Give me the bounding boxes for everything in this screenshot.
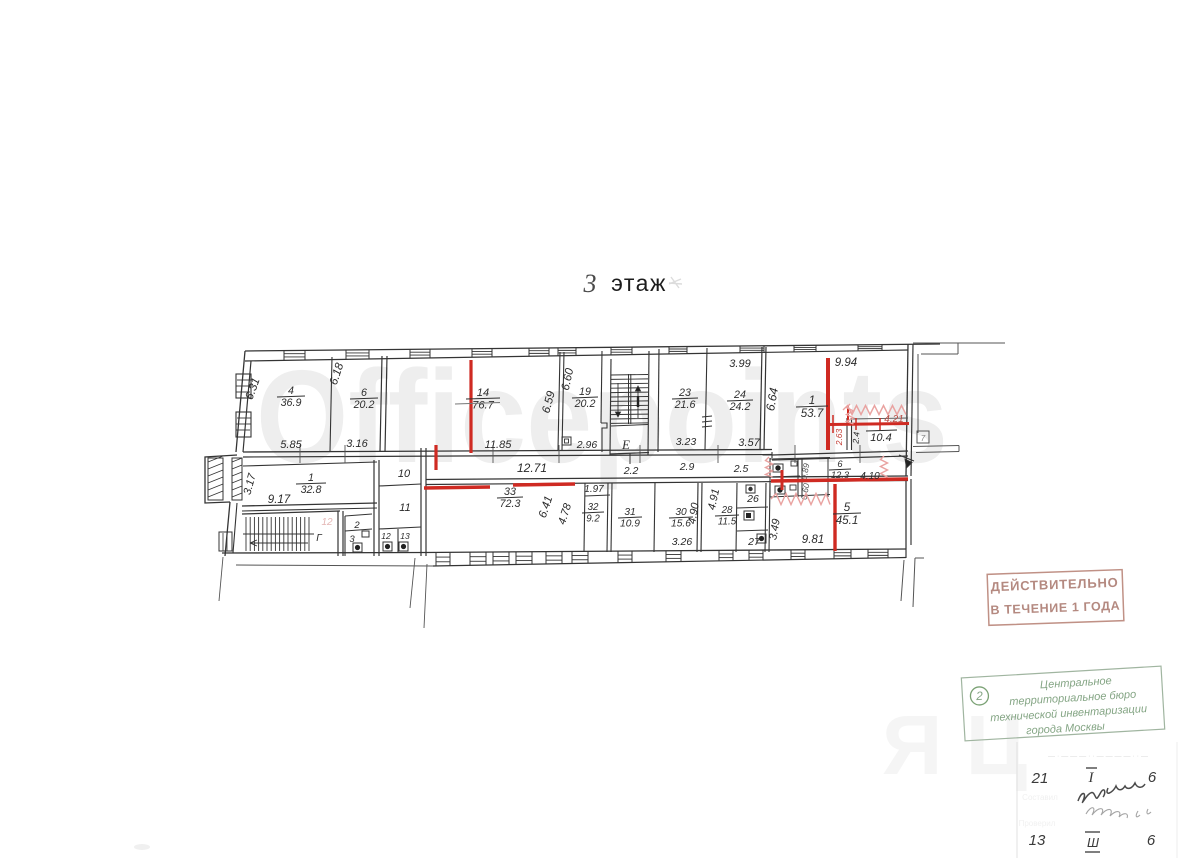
svg-text:5.85: 5.85 <box>280 439 302 451</box>
svg-text:города Москвы: города Москвы <box>1026 721 1105 738</box>
svg-text:9.17: 9.17 <box>268 494 291 506</box>
svg-text:2: 2 <box>975 689 984 703</box>
svg-text:10: 10 <box>398 468 411 480</box>
svg-text:3: 3 <box>349 534 355 545</box>
svg-text:Составил: Составил <box>1022 793 1058 802</box>
svg-text:11: 11 <box>399 502 410 514</box>
svg-text:6: 6 <box>837 459 843 469</box>
svg-text:11.5: 11.5 <box>718 516 737 527</box>
svg-text:2.63: 2.63 <box>834 428 844 446</box>
svg-text:14: 14 <box>477 387 489 399</box>
svg-text:13: 13 <box>400 531 410 541</box>
svg-text:3.99: 3.99 <box>729 358 750 370</box>
svg-text:32: 32 <box>588 502 599 513</box>
svg-text:11.85: 11.85 <box>485 439 513 451</box>
svg-text:9.94: 9.94 <box>835 357 857 369</box>
svg-text:20.2: 20.2 <box>353 399 375 411</box>
svg-text:3.26: 3.26 <box>672 536 693 548</box>
svg-text:19: 19 <box>579 386 591 398</box>
svg-text:33: 33 <box>504 486 516 498</box>
svg-text:Е: Е <box>621 437 630 452</box>
svg-text:28: 28 <box>721 505 733 516</box>
svg-text:21.6: 21.6 <box>674 399 696 411</box>
svg-text:Проверил: Проверил <box>1019 819 1056 828</box>
svg-text:12: 12 <box>381 531 391 541</box>
svg-text:— · — — — · · — — — — · · —: — · — — — · · — — — — · · — <box>1048 753 1148 760</box>
svg-text:26: 26 <box>746 493 759 505</box>
svg-text:1: 1 <box>809 394 815 407</box>
svg-text:13: 13 <box>1029 832 1046 849</box>
svg-text:0.60: 0.60 <box>799 482 812 500</box>
svg-text:3: 3 <box>583 269 597 298</box>
svg-text:4.90: 4.90 <box>686 501 702 525</box>
svg-text:6.41: 6.41 <box>537 495 555 520</box>
svg-text:6: 6 <box>361 387 367 399</box>
svg-text:В ТЕЧЕНИЕ 1 ГОДА: В ТЕЧЕНИЕ 1 ГОДА <box>990 599 1120 618</box>
svg-text:12.3: 12.3 <box>831 470 850 480</box>
svg-text:3.49: 3.49 <box>767 518 783 541</box>
svg-text:12.71: 12.71 <box>517 461 547 475</box>
svg-text:24.2: 24.2 <box>729 401 751 413</box>
svg-text:9.81: 9.81 <box>802 534 824 546</box>
svg-text:12: 12 <box>321 517 333 528</box>
svg-text:7: 7 <box>921 434 926 443</box>
svg-text:Ш: Ш <box>1087 835 1099 850</box>
svg-text:2.4: 2.4 <box>850 431 861 445</box>
svg-text:31: 31 <box>624 507 635 518</box>
svg-text:10.4: 10.4 <box>870 432 891 444</box>
svg-text:2.5: 2.5 <box>733 463 749 475</box>
svg-text:30: 30 <box>675 507 687 518</box>
svg-text:Г: Г <box>316 533 323 544</box>
svg-text:ДЕЙСТВИТЕЛЬНО: ДЕЙСТВИТЕЛЬНО <box>990 575 1118 594</box>
svg-text:53.7: 53.7 <box>801 407 824 420</box>
svg-text:24: 24 <box>733 389 746 401</box>
svg-text:6: 6 <box>1147 832 1156 849</box>
svg-text:2.2: 2.2 <box>623 465 639 477</box>
svg-text:3.17: 3.17 <box>242 471 259 496</box>
svg-text:Центральное: Центральное <box>1040 675 1112 691</box>
svg-text:4.78: 4.78 <box>556 501 574 526</box>
svg-text:4.21: 4.21 <box>884 414 903 425</box>
svg-text:3.16: 3.16 <box>346 438 368 450</box>
svg-text:2.96: 2.96 <box>576 439 598 451</box>
svg-text:5: 5 <box>844 501 851 514</box>
svg-text:9.2: 9.2 <box>586 513 600 524</box>
svg-text:36.9: 36.9 <box>281 397 302 409</box>
svg-text:4.10: 4.10 <box>860 471 880 482</box>
svg-text:2.9: 2.9 <box>679 461 695 473</box>
svg-text:3.57: 3.57 <box>738 437 760 449</box>
svg-text:32.8: 32.8 <box>301 484 322 496</box>
svg-text:1.97: 1.97 <box>584 484 604 495</box>
svg-text:45.1: 45.1 <box>836 514 859 527</box>
svg-text:23: 23 <box>678 387 691 399</box>
svg-text:4.91: 4.91 <box>706 488 722 511</box>
svg-text:3.23: 3.23 <box>676 436 697 448</box>
svg-text:76.7: 76.7 <box>472 399 495 411</box>
svg-text:10.9: 10.9 <box>620 519 640 530</box>
svg-text:21: 21 <box>1031 770 1049 787</box>
svg-text:2: 2 <box>353 520 360 531</box>
svg-text:72.3: 72.3 <box>500 498 521 510</box>
svg-text:4: 4 <box>288 385 294 397</box>
svg-text:27: 27 <box>747 536 761 548</box>
svg-text:20.2: 20.2 <box>574 398 596 410</box>
svg-text:I: I <box>1088 770 1095 786</box>
svg-text:этаж: этаж <box>611 270 667 296</box>
svg-text:6: 6 <box>1148 769 1157 786</box>
svg-text:1: 1 <box>308 472 314 484</box>
